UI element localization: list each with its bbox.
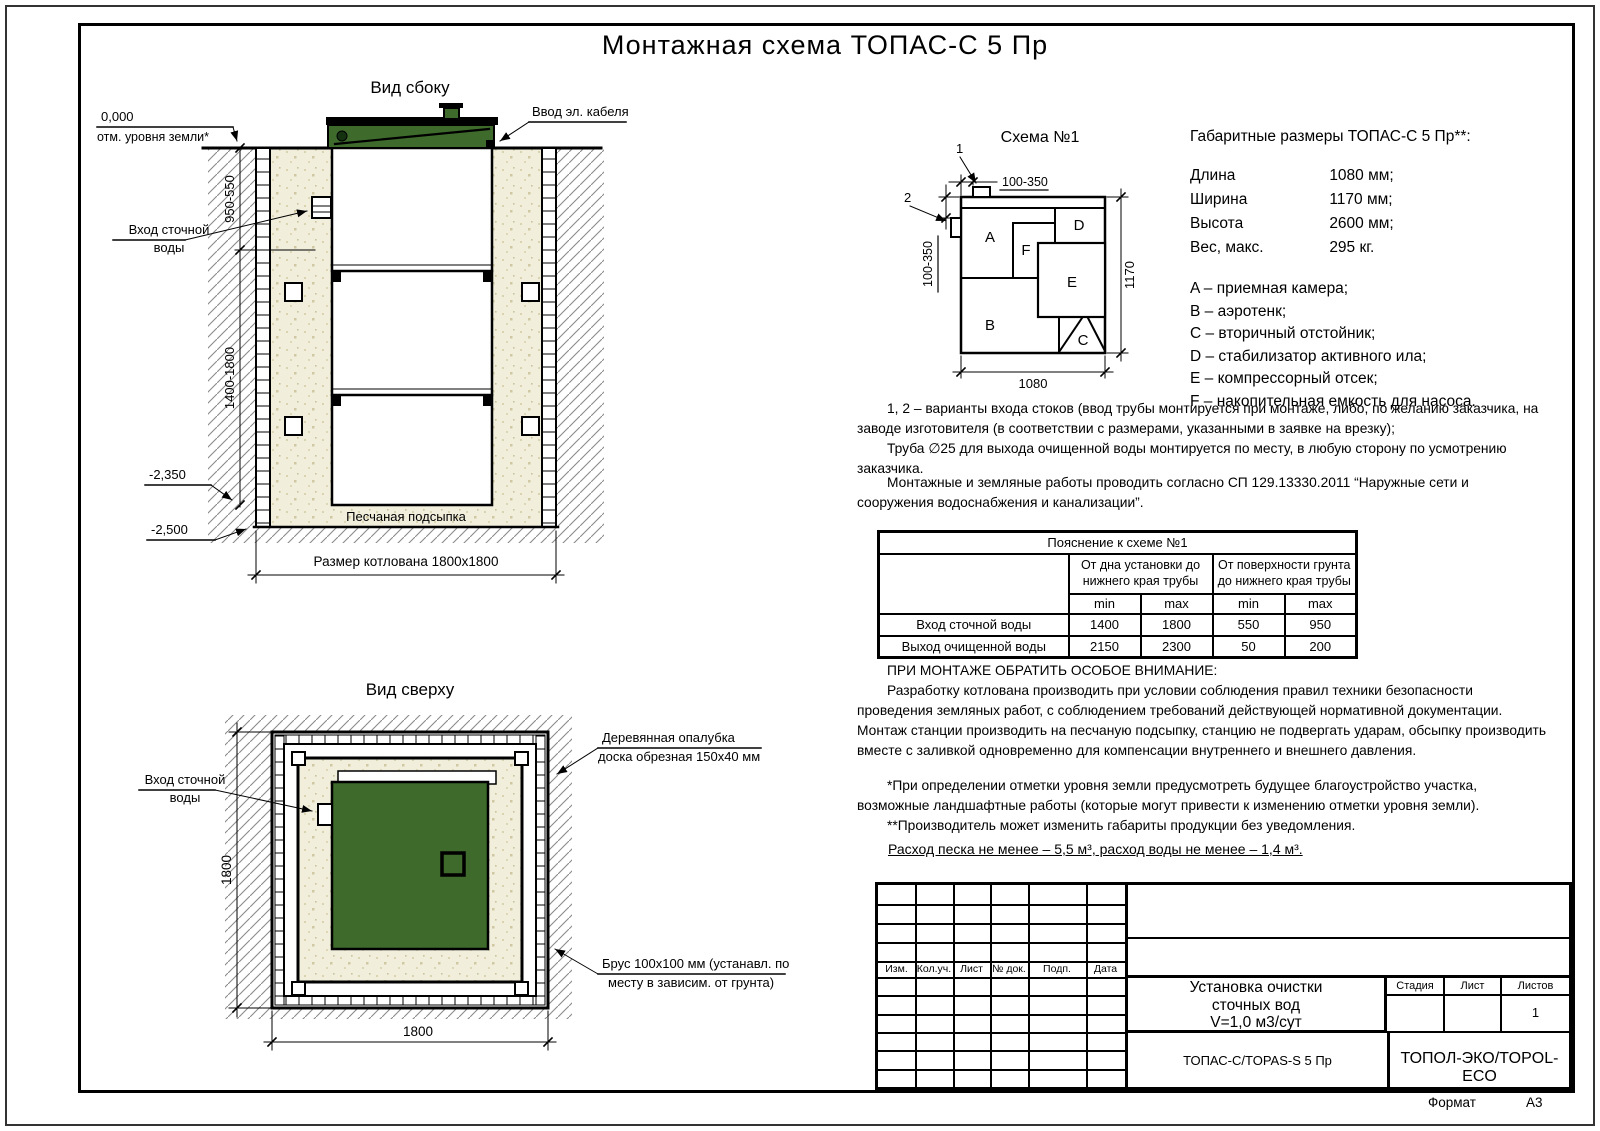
pit-size-label: Размер котлована 1800х1800 bbox=[314, 554, 499, 569]
grid-header: Лист bbox=[953, 962, 990, 977]
schema-drawing: Схема №1 A B C D E F 1 bbox=[855, 115, 1155, 395]
side-view-title: Вид сбоку bbox=[370, 78, 450, 97]
dim-value: 1080 мм; bbox=[1329, 167, 1393, 184]
dim-value: 1170 мм; bbox=[1329, 191, 1392, 208]
table-group1-header: От дна установки до нижнего края трубы bbox=[1069, 554, 1213, 594]
page-title: Монтажная схема ТОПАС-С 5 Пр bbox=[78, 30, 1572, 61]
compartment-a: A bbox=[985, 229, 995, 246]
sand-layer-label: Песчаная подсыпка bbox=[346, 509, 466, 524]
format-value: А3 bbox=[1526, 1095, 1543, 1110]
dim-value: 2600 мм; bbox=[1329, 215, 1393, 232]
note-inlet-variants: 1, 2 – варианты входа стоков (ввод трубы… bbox=[857, 399, 1552, 479]
compartment-f: F bbox=[1021, 242, 1030, 259]
grid-header: Изм. bbox=[878, 962, 915, 977]
beam-label-line1: Брус 100х100 мм (устанавл. по bbox=[602, 956, 789, 971]
table-group2-header: От поверхности грунта до нижнего края тр… bbox=[1213, 554, 1357, 594]
footnote: **Производитель может изменить габариты … bbox=[857, 816, 1537, 836]
max-header: max bbox=[1285, 594, 1357, 614]
grid-header: № док. bbox=[990, 962, 1028, 977]
inlet-label-top1: Вход сточной bbox=[145, 772, 226, 787]
marker-1-label: 1 bbox=[956, 141, 963, 156]
title-block: Изм. Кол.уч. Лист № док. Подп. Дата Уста… bbox=[875, 882, 1572, 1090]
legend-item: C – вторичный отстойник; bbox=[1190, 323, 1575, 346]
footnotes-block: *При определении отметки уровня земли пр… bbox=[857, 776, 1537, 836]
compartment-legend: A – приемная камера; B – аэротенк; C – в… bbox=[1190, 278, 1575, 413]
grid-header: Дата bbox=[1086, 962, 1125, 977]
formwork-left bbox=[256, 148, 270, 527]
cell-value: 2300 bbox=[1141, 636, 1213, 658]
dim-1400-1800-label: 1400-1800 bbox=[222, 347, 237, 409]
stage-header: Стадия bbox=[1387, 978, 1445, 996]
dimensions-heading: Габаритные размеры ТОПАС-С 5 Пр**: bbox=[1190, 128, 1575, 146]
explanation-table: Пояснение к схеме №1 От дна установки до… bbox=[877, 530, 1358, 659]
cell-value: 1800 bbox=[1141, 614, 1213, 636]
inlet-label-line2: воды bbox=[154, 240, 185, 255]
inlet-pipe bbox=[312, 197, 331, 218]
attention-block: ПРИ МОНТАЖЕ ОБРАТИТЬ ОСОБОЕ ВНИМАНИЕ: Ра… bbox=[857, 661, 1547, 761]
dim-name: Высота bbox=[1190, 212, 1325, 236]
schema-inlet-2 bbox=[951, 218, 961, 237]
table-title: Пояснение к схеме №1 bbox=[879, 532, 1357, 554]
revision-grid: Изм. Кол.уч. Лист № док. Подп. Дата bbox=[875, 882, 1125, 1090]
row-label: Вход сточной воды bbox=[879, 614, 1069, 636]
note-text: Монтажные и земляные работы проводить со… bbox=[857, 473, 1527, 513]
min-header: min bbox=[1069, 594, 1141, 614]
max-header: max bbox=[1141, 594, 1213, 614]
grid-header: Кол.уч. bbox=[915, 962, 953, 977]
cell-value: 1400 bbox=[1069, 614, 1141, 636]
schema-dim-bottom bbox=[953, 356, 1113, 378]
zero-caption-label: отм. уровня земли* bbox=[97, 130, 209, 144]
document-title-cell: Установка очистки сточных вод V=1,0 м3/с… bbox=[1128, 978, 1387, 1033]
table-corner-cell bbox=[879, 554, 1069, 614]
compartment-e: E bbox=[1067, 274, 1077, 291]
dim-100-350-left: 100-350 bbox=[921, 241, 935, 287]
note-text: 1, 2 – варианты входа стоков (ввод трубы… bbox=[857, 399, 1552, 439]
side-view-drawing: Вид сбоку bbox=[85, 75, 645, 605]
cell-value: 2150 bbox=[1069, 636, 1141, 658]
footnote: *При определении отметки уровня земли пр… bbox=[857, 776, 1537, 816]
dim-value: 295 кг. bbox=[1329, 239, 1374, 256]
attention-body: Разработку котлована производить при усл… bbox=[857, 681, 1547, 761]
overall-dimensions-block: Габаритные размеры ТОПАС-С 5 Пр**: Длина… bbox=[1190, 128, 1575, 413]
dim-row: Длина 1080 мм; bbox=[1190, 164, 1575, 188]
beam-label-line2: месту в зависим. от грунта) bbox=[608, 975, 774, 990]
cable-entry-point bbox=[486, 140, 494, 149]
sheet-value bbox=[1445, 996, 1502, 1033]
attention-heading: ПРИ МОНТАЖЕ ОБРАТИТЬ ОСОБОЕ ВНИМАНИЕ: bbox=[857, 661, 1547, 681]
doc-title-line: V=1,0 м3/сут bbox=[1128, 1014, 1384, 1032]
service-hatch bbox=[442, 853, 464, 875]
dim-100-350-top: 100-350 bbox=[1002, 175, 1048, 189]
material-consumption-note: Расход песка не менее – 5,5 м³, расход в… bbox=[888, 841, 1303, 857]
min-header: min bbox=[1213, 594, 1285, 614]
tank-lid bbox=[326, 103, 498, 148]
compartment-d: D bbox=[1074, 217, 1085, 234]
brand-cell: ТОПОЛ-ЭКО/TOPOL-ECO bbox=[1387, 1033, 1569, 1087]
dim-1170-label: 1170 bbox=[1122, 261, 1137, 289]
dim-name: Ширина bbox=[1190, 188, 1325, 212]
legend-item: D – стабилизатор активного ила; bbox=[1190, 346, 1575, 369]
tank-body bbox=[332, 148, 492, 505]
stage-value bbox=[1387, 996, 1445, 1033]
inlet-label-line1: Вход сточной bbox=[129, 222, 210, 237]
cell-value: 950 bbox=[1285, 614, 1357, 636]
cell-value: 200 bbox=[1285, 636, 1357, 658]
zero-mark-label: 0,000 bbox=[101, 109, 134, 124]
dim-950-550-label: 950-550 bbox=[222, 175, 237, 223]
doc-title-line: сточных вод bbox=[1128, 997, 1384, 1015]
dim-row: Ширина 1170 мм; bbox=[1190, 188, 1575, 212]
doc-title-line: Установка очистки bbox=[1128, 979, 1384, 997]
legend-item: A – приемная камера; bbox=[1190, 278, 1575, 301]
sheet-header: Лист bbox=[1445, 978, 1502, 996]
cell-value: 50 bbox=[1213, 636, 1285, 658]
compartment-b: B bbox=[985, 317, 995, 334]
mark-2350-label: -2,350 bbox=[149, 467, 186, 482]
schema-title: Схема №1 bbox=[1001, 129, 1080, 146]
formwork-right bbox=[542, 148, 556, 527]
cable-label: Ввод эл. кабеля bbox=[532, 104, 629, 119]
format-note: Формат А3 bbox=[1428, 1095, 1542, 1110]
format-label: Формат bbox=[1428, 1095, 1476, 1110]
cell-value: 550 bbox=[1213, 614, 1285, 636]
mark-2500-label: -2,500 bbox=[151, 522, 188, 537]
dim-1800-left: 1800 bbox=[219, 855, 234, 885]
top-view-title: Вид сверху bbox=[366, 680, 455, 699]
grid-header: Подп. bbox=[1028, 962, 1086, 977]
dim-1080-label: 1080 bbox=[1019, 376, 1048, 391]
dim-1800-bottom: 1800 bbox=[403, 1024, 433, 1039]
legend-item: B – аэротенк; bbox=[1190, 301, 1575, 324]
title-block-right: Установка очистки сточных вод V=1,0 м3/с… bbox=[1125, 882, 1572, 1090]
formwork-label-line2: доска обрезная 150х40 мм bbox=[598, 749, 760, 764]
top-view-drawing: Вид сверху Вход сточной воды bbox=[85, 665, 805, 1070]
inlet-pipe-top bbox=[318, 804, 332, 825]
drawing-sheet: Монтажная схема ТОПАС-С 5 Пр bbox=[0, 0, 1600, 1131]
marker-2-label: 2 bbox=[904, 190, 911, 205]
note-works: Монтажные и земляные работы проводить со… bbox=[857, 473, 1527, 513]
schema-inlet-1 bbox=[973, 187, 990, 197]
legend-item: E – компрессорный отсек; bbox=[1190, 368, 1575, 391]
dim-row: Вес, макс. 295 кг. bbox=[1190, 236, 1575, 260]
model-cell: ТОПАС-С/TOPAS-S 5 Пр bbox=[1128, 1033, 1387, 1087]
sheets-header: Листов bbox=[1502, 978, 1569, 996]
divider bbox=[1128, 937, 1569, 939]
dim-name: Вес, макс. bbox=[1190, 236, 1325, 260]
row-label: Выход очищенной воды bbox=[879, 636, 1069, 658]
dim-row: Высота 2600 мм; bbox=[1190, 212, 1575, 236]
compartment-c: C bbox=[1078, 332, 1089, 349]
inlet-label-top2: воды bbox=[170, 790, 201, 805]
dim-name: Длина bbox=[1190, 164, 1325, 188]
sheets-value: 1 bbox=[1502, 996, 1569, 1033]
formwork-label-line1: Деревянная опалубка bbox=[602, 730, 736, 745]
